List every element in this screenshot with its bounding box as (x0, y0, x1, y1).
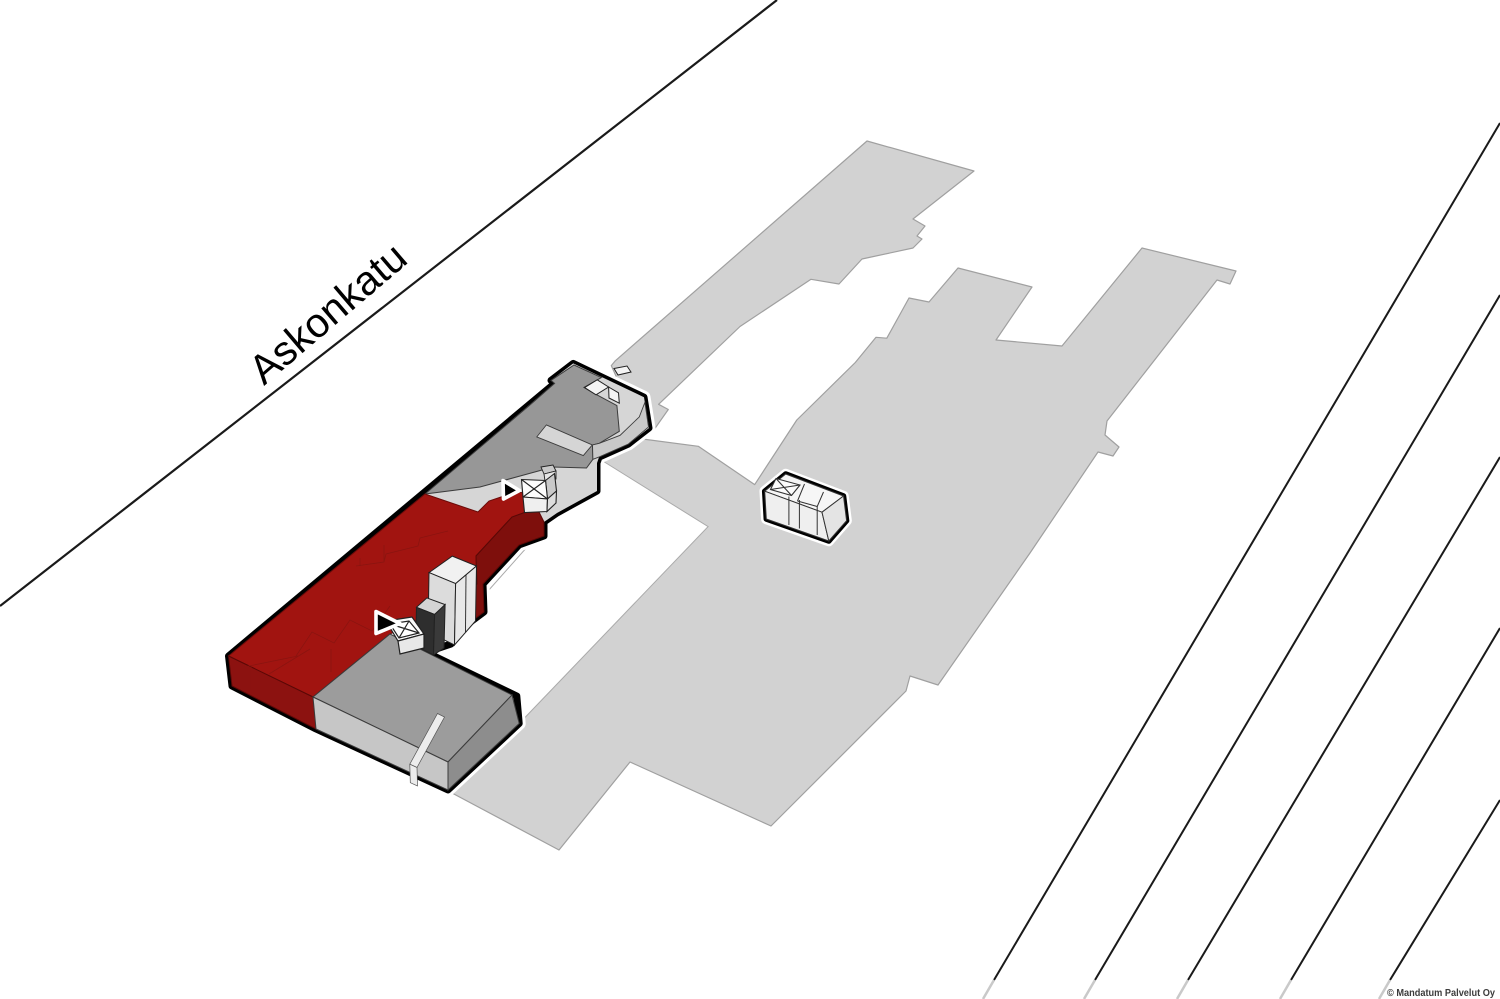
svg-text:Askonkatu: Askonkatu (240, 234, 415, 393)
svg-text:© Mandatum Palvelut Oy: © Mandatum Palvelut Oy (1387, 988, 1495, 999)
